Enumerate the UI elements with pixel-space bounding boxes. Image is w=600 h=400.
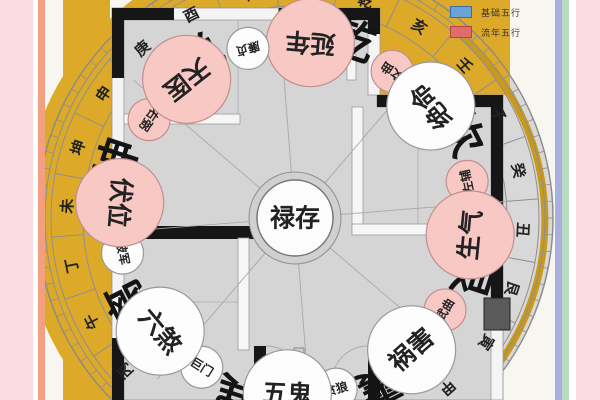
diagram-area: 壬子癸丑艮寅甲卯乙辰巽巳丙午丁未坤申庚酉辛戌乾亥乾坎艮震巽离坤兑 禄存 延年文曲… (45, 0, 555, 400)
star-circle-large: 生气 (426, 191, 514, 279)
center-star-label: 禄存 (270, 204, 320, 233)
star-circle-small: 廉贞 (227, 27, 269, 69)
tick-mark (544, 201, 552, 202)
legend-item-annual: 流年五行 (450, 24, 521, 40)
star-circle-large: 六煞 (116, 287, 204, 375)
bagua-compass-diagram: 壬子癸丑艮寅甲卯乙辰巽巳丙午丁未坤申庚酉辛戌乾亥乾坎艮震巽离坤兑 禄存 延年文曲… (45, 0, 555, 400)
mountain-char: 丑 (513, 222, 532, 238)
base-elements-swatch (450, 6, 472, 18)
legend: 基础五行 流年五行 (450, 4, 521, 44)
center-hub: 禄存 (249, 172, 341, 264)
star-circle-large: 天医 (143, 35, 231, 123)
star-circle-large: 绝命 (387, 62, 475, 150)
tick-mark (544, 234, 552, 235)
star-label: 伏位 (103, 176, 136, 228)
right-white-stripe (569, 0, 576, 400)
star-label: 延年 (284, 26, 337, 59)
star-circle-large: 延年 (266, 0, 354, 87)
star-circle-large: 祸害 (368, 306, 456, 394)
right-green-stripe (562, 0, 569, 400)
star-circle-large: 伏位 (76, 159, 164, 247)
legend-label: 流年五行 (481, 26, 521, 39)
star-label: 五鬼 (262, 378, 313, 400)
right-lavender-stripe (555, 0, 562, 400)
feng-shui-page: 壬子癸丑艮寅甲卯乙辰巽巳丙午丁未坤申庚酉辛戌乾亥乾坎艮震巽离坤兑 禄存 延年文曲… (0, 0, 600, 400)
star-label: 生气 (453, 209, 487, 262)
mountain-char: 未 (58, 197, 77, 215)
annual-elements-swatch (450, 26, 472, 38)
left-salmon-stripe (38, 0, 45, 400)
legend-item-base: 基础五行 (450, 4, 521, 20)
legend-label: 基础五行 (481, 6, 521, 19)
